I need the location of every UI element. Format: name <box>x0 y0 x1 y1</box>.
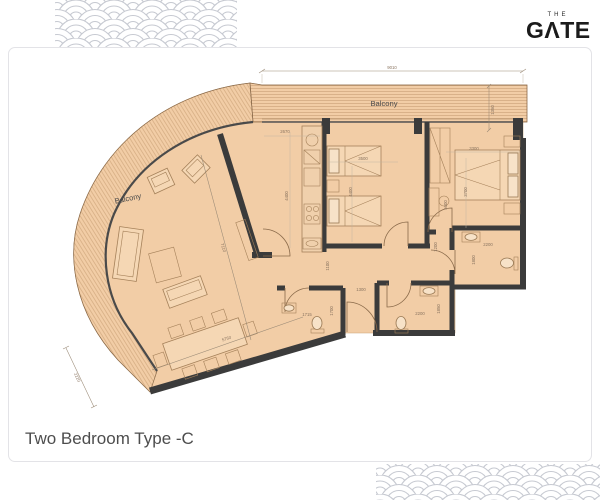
dim-hall-height: 1100 <box>325 261 330 271</box>
dim-bedroom2-width: 3300 <box>469 146 479 151</box>
dim-hall-width: 1300 <box>356 287 366 292</box>
dim-bath2-width: 2200 <box>415 311 425 316</box>
dim-bedroom2-depth: 3700 <box>463 187 468 197</box>
kitchen-counter <box>302 126 322 252</box>
dim-bath2-depth: 1850 <box>436 304 441 314</box>
dim-bath1-width: 1715 <box>302 312 312 317</box>
dim-bath1-depth: 1700 <box>329 306 334 316</box>
dim-kitchen-depth: 4400 <box>284 191 289 201</box>
dim-bedroom1-depth: 4400 <box>348 187 353 197</box>
balcony-top-label: Balcony <box>370 99 397 108</box>
dim-bath3-depth: 1800 <box>471 255 476 265</box>
dim-bath3-width: 2200 <box>483 242 493 247</box>
floor-plan-drawing: Balcony Balcony 9010 1350 2670 4400 3500… <box>0 0 600 500</box>
dim-bedroom2-length: 5600 <box>443 200 448 210</box>
dim-balcony-end: 2220 <box>73 372 82 383</box>
dim-bedroom1-width: 3500 <box>358 156 368 161</box>
dim-balcony-depth: 1350 <box>490 105 495 115</box>
dim-overall-width: 9010 <box>387 65 397 70</box>
dim-kitchen-width: 2670 <box>280 129 290 134</box>
dim-hall-right: 1200 <box>433 242 438 252</box>
plan-title: Two Bedroom Type -C <box>25 429 194 449</box>
